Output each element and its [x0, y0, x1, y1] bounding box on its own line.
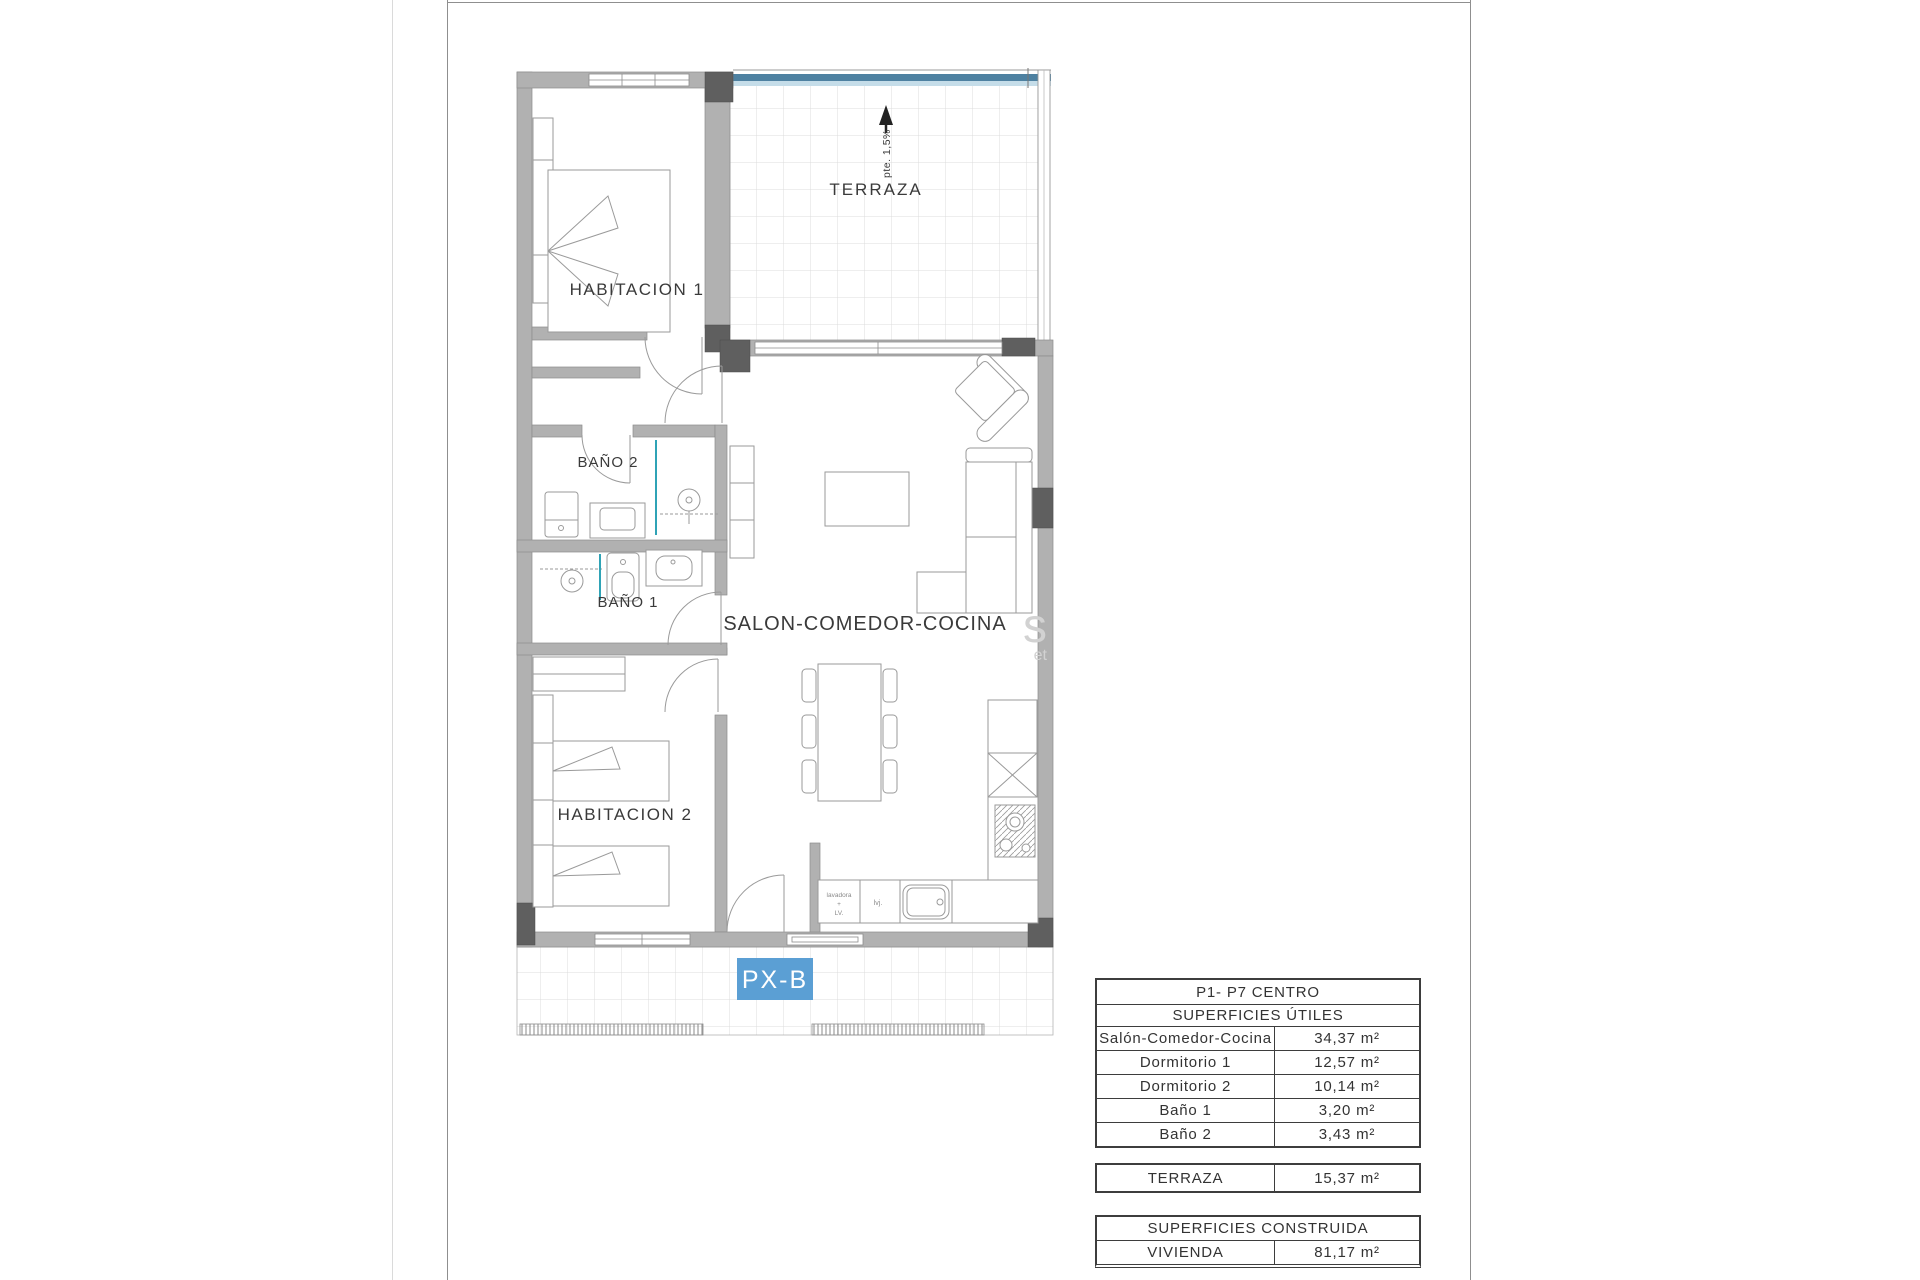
sofa — [917, 448, 1032, 613]
row-value: 3,43 m² — [1275, 1123, 1419, 1146]
washer-label-line2: + — [837, 901, 841, 908]
room-label-habitacion1: HABITACION 1 — [570, 280, 705, 299]
table-row: VIVIENDA 81,17 m² — [1097, 1240, 1419, 1264]
dishwasher-label: lvj. — [874, 900, 883, 907]
room-label-bano2: BAÑO 2 — [577, 454, 638, 471]
unit-tag-label: PX-B — [742, 966, 808, 994]
floorplan-sheet: { "plan": { "rooms": { "habitacion1": "H… — [0, 0, 1920, 1280]
furniture-habitacion1 — [533, 118, 670, 332]
window-habitacion2 — [595, 934, 690, 945]
row-label: Dormitorio 1 — [1097, 1051, 1275, 1074]
row-label: VIVIENDA — [1097, 1241, 1275, 1264]
pillar — [705, 72, 733, 102]
pillar — [1002, 338, 1035, 356]
table-superficies-utiles: P1- P7 CENTRO SUPERFICIES ÚTILES Salón-C… — [1095, 978, 1421, 1148]
furniture-habitacion2 — [533, 657, 669, 907]
door-salon — [665, 366, 722, 423]
table-superficies-construida: SUPERFICIES CONSTRUIDA VIVIENDA 81,17 m² — [1095, 1215, 1421, 1268]
patio-edge-hatch — [520, 1024, 703, 1035]
chair — [802, 669, 816, 702]
chair — [883, 760, 897, 793]
row-value: 3,20 m² — [1275, 1099, 1419, 1122]
table-row: Salón-Comedor-Cocina 34,37 m² — [1097, 1026, 1419, 1050]
window-habitacion1 — [589, 74, 689, 86]
row-label: TERRAZA — [1097, 1165, 1275, 1191]
room-label-habitacion2: HABITACION 2 — [558, 805, 693, 824]
chair — [802, 715, 816, 748]
fridge — [988, 753, 1037, 797]
table-row: Baño 2 3,43 m² — [1097, 1122, 1419, 1146]
dining-table — [818, 664, 881, 801]
door-patio — [727, 875, 784, 932]
room-label-terraza: TERRAZA — [829, 180, 922, 199]
table-row: TERRAZA 15,37 m² — [1097, 1165, 1419, 1191]
row-value: 10,14 m² — [1275, 1075, 1419, 1098]
patio-edge-hatch — [812, 1024, 984, 1035]
door-habitacion2 — [665, 659, 718, 712]
tv-unit — [730, 446, 754, 558]
table-row: Dormitorio 2 10,14 m² — [1097, 1074, 1419, 1098]
kitchen — [802, 664, 1038, 923]
cabinet — [988, 700, 1037, 753]
table-terraza: TERRAZA 15,37 m² — [1095, 1163, 1421, 1193]
row-value: 15,37 m² — [1275, 1165, 1419, 1191]
pillar — [1030, 488, 1053, 528]
washer-label-line3: LV. — [835, 910, 844, 917]
chair — [802, 760, 816, 793]
row-label: Baño 2 — [1097, 1123, 1275, 1146]
watermark-small: et — [1034, 647, 1048, 664]
table-subtitle: SUPERFICIES ÚTILES — [1097, 1005, 1419, 1026]
room-label-salon: SALON-COMEDOR-COCINA — [723, 613, 1006, 635]
chair — [883, 715, 897, 748]
sink — [903, 885, 949, 919]
window-salon — [755, 342, 1002, 354]
watermark-large: s — [1023, 600, 1047, 653]
floor-plan: HABITACION 1 TERRAZA BAÑO 2 BAÑO 1 SALON… — [0, 0, 1920, 1280]
row-label: Salón-Comedor-Cocina — [1097, 1027, 1275, 1050]
table-title: SUPERFICIES CONSTRUIDA — [1097, 1217, 1419, 1240]
pillar — [517, 903, 535, 945]
pillar — [720, 340, 750, 372]
table-title: P1- P7 CENTRO — [1097, 980, 1419, 1004]
armchair — [938, 351, 1031, 444]
door-habitacion1 — [645, 337, 702, 394]
window-kitchen — [787, 934, 863, 945]
furniture-salon — [730, 351, 1032, 613]
door-bano1 — [668, 592, 721, 645]
row-label: Baño 1 — [1097, 1099, 1275, 1122]
hob — [995, 805, 1035, 857]
washer-label-line1: lavadora — [827, 892, 852, 899]
table-row: Dormitorio 1 12,57 m² — [1097, 1050, 1419, 1074]
headboard-band — [533, 695, 553, 907]
slope-label: pte. 1,5% — [881, 129, 893, 178]
bed-double — [548, 170, 670, 332]
room-label-bano1: BAÑO 1 — [597, 594, 658, 611]
coffee-table — [825, 472, 909, 526]
chair — [883, 669, 897, 702]
row-value: 34,37 m² — [1275, 1027, 1419, 1050]
unit-tag: PX-B — [737, 958, 813, 1000]
row-value: 81,17 m² — [1275, 1241, 1419, 1264]
row-value: 12,57 m² — [1275, 1051, 1419, 1074]
dining-set — [802, 664, 897, 801]
table-row: Baño 1 3,20 m² — [1097, 1098, 1419, 1122]
row-label: Dormitorio 2 — [1097, 1075, 1275, 1098]
